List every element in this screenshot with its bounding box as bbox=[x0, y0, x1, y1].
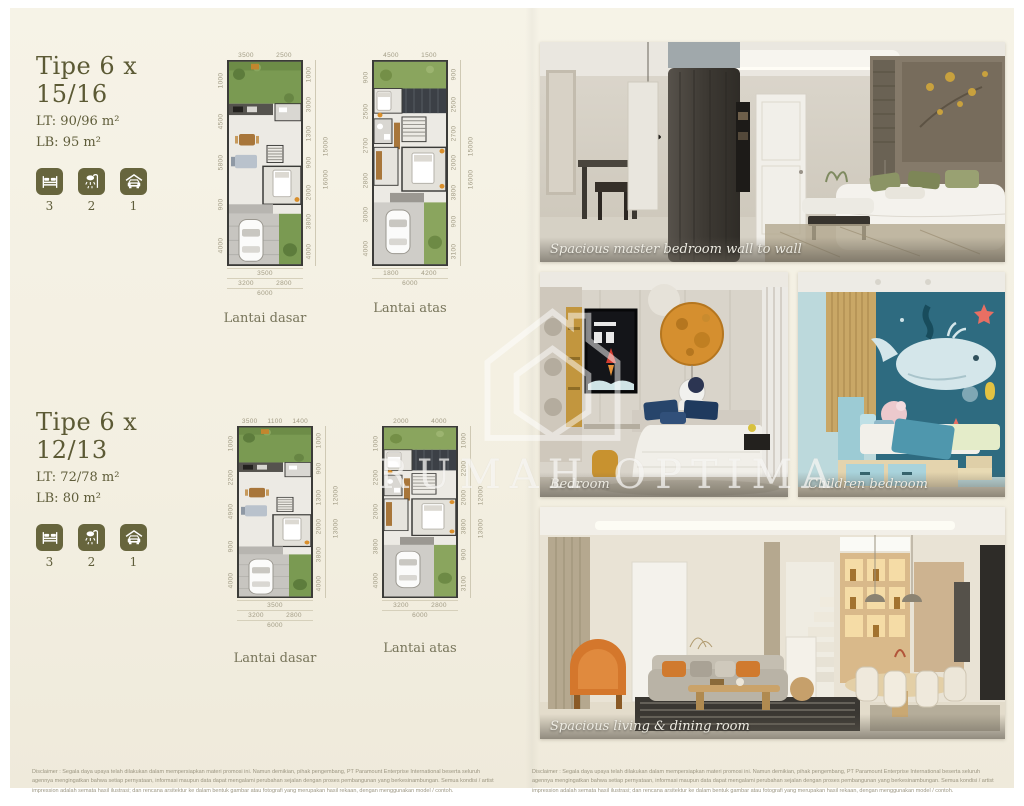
dimension-label: 2500 bbox=[276, 52, 292, 59]
dark-wardrobe bbox=[668, 42, 750, 262]
dimension-label: 13000 bbox=[332, 519, 339, 539]
bed-icon bbox=[36, 168, 63, 195]
plan-caption: Lantai atas bbox=[370, 641, 470, 656]
car-top-view bbox=[239, 219, 263, 261]
dimension-label: 2200 bbox=[373, 470, 380, 486]
shelf-column bbox=[540, 287, 582, 462]
dimension-label: 1500 bbox=[421, 52, 437, 59]
dimension-label: 4000 bbox=[373, 573, 380, 589]
floorplan-drawing-upper bbox=[382, 426, 458, 598]
dimension-label: 16000 bbox=[322, 170, 329, 190]
dimension-label: 3500 bbox=[267, 602, 283, 609]
feature-stats: 3 2 1 bbox=[36, 524, 216, 569]
dimension-label: 12000 bbox=[477, 486, 484, 506]
white-door bbox=[756, 94, 806, 246]
floorplan-drawing-ground bbox=[227, 60, 303, 266]
dimension-label: 5800 bbox=[218, 155, 225, 171]
dimension-label: 2500 bbox=[363, 104, 370, 120]
photo-living-dining: Spacious living & dining room bbox=[540, 507, 1005, 739]
bed-count: 3 bbox=[36, 199, 63, 213]
dimension-label: 2500 bbox=[451, 96, 458, 112]
dimension-row: 32002800 bbox=[237, 610, 313, 619]
plan-caption: Lantai atas bbox=[360, 301, 460, 316]
dimension-label: 3200 bbox=[238, 280, 254, 287]
dimension-label: 4000 bbox=[218, 238, 225, 254]
garage-count: 1 bbox=[120, 555, 147, 569]
dimension-label: 16000 bbox=[467, 170, 474, 190]
dimension-row: 32002800 bbox=[382, 600, 458, 609]
dimension-label: 6000 bbox=[402, 280, 418, 287]
dimension-label: 3800 bbox=[451, 185, 458, 201]
dimension-label: 2000 bbox=[373, 504, 380, 520]
disclaimer-right: Disclaimer : Segala daya upaya telah dil… bbox=[532, 768, 1002, 796]
dimension-label: 1000 bbox=[306, 67, 313, 83]
bath-count: 2 bbox=[78, 555, 105, 569]
dimension-row: 6000 bbox=[372, 278, 448, 287]
land-area: LT: 72/78 m² bbox=[36, 470, 216, 485]
dimension-label: 1000 bbox=[461, 432, 468, 448]
dimension-label: 2200 bbox=[461, 461, 468, 477]
dimension-label: 3100 bbox=[461, 576, 468, 592]
dimension-label: 2000 bbox=[461, 490, 468, 506]
dimension-label: 2700 bbox=[363, 138, 370, 154]
disclaimer-left: Disclaimer : Segala daya upaya telah dil… bbox=[32, 768, 502, 796]
side-door bbox=[628, 82, 658, 210]
type-block-6x12: Tipe 6 x 12/13 LT: 72/78 m² LB: 80 m² 3 … bbox=[36, 408, 216, 569]
floorplan-drawing-ground bbox=[237, 426, 313, 598]
garage-count: 1 bbox=[120, 199, 147, 213]
type-title: Tipe 6 x 12/13 bbox=[36, 408, 216, 464]
children-bedroom-render bbox=[798, 272, 1005, 497]
dimension-label: 2800 bbox=[286, 612, 302, 619]
dimension-row: 6000 bbox=[237, 620, 313, 629]
bed-icon bbox=[36, 524, 63, 551]
photo-caption: Children bedroom bbox=[798, 472, 1005, 497]
dimension-label: 1300 bbox=[306, 126, 313, 142]
dimension-label: 3500 bbox=[238, 52, 254, 59]
dimension-label: 900 bbox=[218, 198, 225, 210]
dimension-label: 1400 bbox=[292, 418, 308, 425]
dimension-label: 1000 bbox=[218, 73, 225, 89]
dimension-label: 2000 bbox=[393, 418, 409, 425]
shower-icon bbox=[78, 168, 105, 195]
plan-caption: Lantai dasar bbox=[225, 651, 325, 666]
dimension-label: 3800 bbox=[306, 214, 313, 230]
dimension-label: 3800 bbox=[373, 539, 380, 555]
dimension-label: 6000 bbox=[412, 612, 428, 619]
dimension-label: 2200 bbox=[228, 470, 235, 486]
dimension-label: 2800 bbox=[276, 280, 292, 287]
side-table bbox=[790, 677, 814, 701]
bedroom-render bbox=[540, 272, 788, 497]
dimension-label: 4200 bbox=[421, 270, 437, 277]
photo-bedroom: Bedroom bbox=[540, 272, 788, 497]
dimension-label: 6000 bbox=[257, 290, 273, 297]
dimension-label: 4900 bbox=[228, 504, 235, 520]
dimension-label: 1000 bbox=[316, 432, 323, 448]
photo-children-bedroom: Children bedroom bbox=[798, 272, 1005, 497]
dimension-label: 3000 bbox=[363, 207, 370, 223]
dimension-label: 1100 bbox=[267, 418, 282, 425]
floorplan-6x15-ground: 35002500 1000450058009004000 bbox=[215, 50, 335, 326]
land-area: LT: 90/96 m² bbox=[36, 114, 216, 129]
building-area: LB: 95 m² bbox=[36, 135, 216, 150]
type-title: Tipe 6 x 15/16 bbox=[36, 52, 216, 108]
photo-caption: Spacious living & dining room bbox=[540, 714, 1005, 739]
car-icon bbox=[120, 168, 147, 195]
living-dining-render bbox=[540, 507, 1005, 739]
floorplan-6x12-upper: 20004000 10002200200038004000 bbox=[370, 416, 490, 656]
dimension-label: 4000 bbox=[316, 576, 323, 592]
dimension-label: 4000 bbox=[228, 573, 235, 589]
dimension-label: 6000 bbox=[267, 622, 283, 629]
dimension-label: 1800 bbox=[383, 270, 399, 277]
brochure-page: Tipe 6 x 15/16 LT: 90/96 m² LB: 95 m² 3 … bbox=[10, 8, 1014, 788]
dimension-label: 15000 bbox=[467, 137, 474, 157]
dimension-label: 900 bbox=[363, 71, 370, 83]
dimension-label: 900 bbox=[316, 463, 323, 475]
dimension-label: 2800 bbox=[363, 172, 370, 188]
plan-caption: Lantai dasar bbox=[215, 311, 315, 326]
car-top-view bbox=[386, 210, 410, 254]
dream-big-poster bbox=[586, 310, 636, 392]
shower-icon bbox=[78, 524, 105, 551]
bed-count: 3 bbox=[36, 555, 63, 569]
photo-caption: Bedroom bbox=[540, 472, 788, 497]
dimension-label: 3100 bbox=[451, 243, 458, 259]
dimension-label: 4000 bbox=[431, 418, 447, 425]
type-block-6x15: Tipe 6 x 15/16 LT: 90/96 m² LB: 95 m² 3 … bbox=[36, 52, 216, 213]
dimension-label: 3000 bbox=[306, 96, 313, 112]
car-icon bbox=[120, 524, 147, 551]
dimension-label: 1000 bbox=[373, 435, 380, 451]
dimension-label: 4500 bbox=[383, 52, 399, 59]
dimension-row: 32002800 bbox=[227, 278, 303, 287]
dimension-label: 3500 bbox=[242, 418, 258, 425]
dimension-label: 3200 bbox=[248, 612, 264, 619]
floorplan-6x12-ground: 350011001400 1000220049009004000 bbox=[225, 416, 345, 666]
dimension-label: 1300 bbox=[316, 490, 323, 506]
dimension-label: 2000 bbox=[306, 185, 313, 201]
dimension-label: 4500 bbox=[218, 114, 225, 130]
dimension-row: 3500 bbox=[237, 600, 313, 609]
dimension-label: 3500 bbox=[257, 270, 273, 277]
dimension-label: 13000 bbox=[477, 519, 484, 539]
dimension-label: 4000 bbox=[306, 243, 313, 259]
dimension-label: 900 bbox=[451, 216, 458, 228]
dimension-row: 6000 bbox=[382, 610, 458, 619]
bath-count: 2 bbox=[78, 199, 105, 213]
car-top-view bbox=[249, 559, 273, 594]
feature-stats: 3 2 1 bbox=[36, 168, 216, 213]
dimension-label: 900 bbox=[451, 69, 458, 81]
building-area: LB: 80 m² bbox=[36, 491, 216, 506]
dimension-label: 2000 bbox=[316, 518, 323, 534]
floorplan-drawing-upper bbox=[372, 60, 448, 266]
dimension-label: 3800 bbox=[316, 547, 323, 563]
car-top-view bbox=[396, 551, 420, 587]
dimension-label: 2000 bbox=[451, 155, 458, 171]
dimension-row: 6000 bbox=[227, 288, 303, 297]
dimension-label: 4000 bbox=[363, 241, 370, 257]
photo-master-bedroom: Spacious master bedroom wall to wall bbox=[540, 42, 1005, 262]
floorplan-6x15-upper: 45001500 90025002700280030004000 bbox=[360, 50, 480, 316]
dimension-label: 900 bbox=[306, 157, 313, 169]
dimension-label: 1000 bbox=[228, 435, 235, 451]
dimension-label: 12000 bbox=[332, 486, 339, 506]
master-bedroom-render bbox=[540, 42, 1005, 262]
dimension-label: 2700 bbox=[451, 126, 458, 142]
dimension-label: 900 bbox=[228, 540, 235, 552]
dimension-label: 15000 bbox=[322, 137, 329, 157]
dimension-label: 2800 bbox=[431, 602, 447, 609]
dimension-row: 3500 bbox=[227, 268, 303, 277]
photo-caption: Spacious master bedroom wall to wall bbox=[540, 237, 1005, 262]
dimension-label: 3200 bbox=[393, 602, 409, 609]
dimension-label: 900 bbox=[461, 549, 468, 561]
dimension-label: 3800 bbox=[461, 518, 468, 534]
dimension-row: 18004200 bbox=[372, 268, 448, 277]
